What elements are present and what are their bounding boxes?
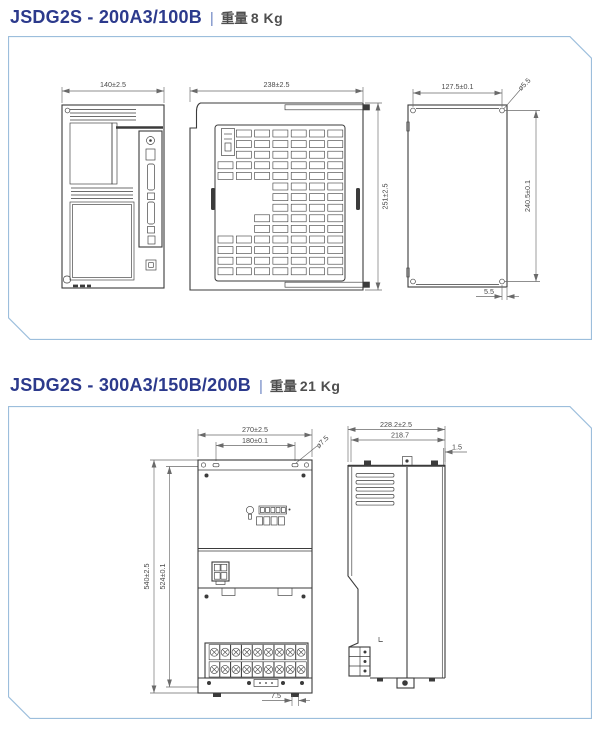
model-name-2: JSDG2S - 300A3/150B/200B — [10, 375, 251, 396]
drawing-panel-300a3: 270±2.5 180±0.1 ø7.5 540±2.5 524±0.1 — [8, 406, 592, 719]
weight-value-1: 8 Kg — [251, 10, 283, 26]
dim-side-depth: 228.2±2.5 — [380, 420, 412, 429]
dim-front-width-1: 140±2.5 — [100, 80, 126, 89]
dim-front-width-2: 270±2.5 — [242, 425, 268, 434]
dim-bottom-offset: 7.5 — [271, 691, 281, 700]
section2-title: JSDG2S - 300A3/150B/200B | 重量 21 Kg — [10, 375, 340, 396]
drawing-panel-200a3: 140±2.5 — [8, 36, 592, 340]
panel2-border — [9, 407, 592, 719]
dim-mount-width-1: 127.5±0.1 — [442, 82, 474, 91]
dim-mount-edge-1: 5.5 — [484, 287, 494, 296]
title-separator-2: | — [259, 378, 263, 395]
dim-mount-height-2: 524±0.1 — [158, 564, 167, 590]
dim-lip: 1.5 — [452, 443, 462, 452]
dim-front-height: 540±2.5 — [142, 564, 151, 590]
dim-mount-width-2: 180±0.1 — [242, 436, 268, 445]
section1-title: JSDG2S - 200A3/100B | 重量 8 Kg — [10, 7, 283, 28]
title-separator-1: | — [210, 10, 214, 27]
dim-side-height-1: 251±2.5 — [381, 184, 390, 210]
dim-mount-height-1: 240.5±0.1 — [523, 180, 532, 212]
weight-label-2: 重量 — [270, 375, 297, 395]
model-name-1: JSDG2S - 200A3/100B — [10, 7, 202, 28]
weight-value-2: 21 Kg — [300, 378, 341, 394]
dim-side-depth2: 218.7 — [391, 431, 409, 440]
weight-label-1: 重量 — [221, 7, 248, 27]
dim-side-width-1: 238±2.5 — [264, 80, 290, 89]
